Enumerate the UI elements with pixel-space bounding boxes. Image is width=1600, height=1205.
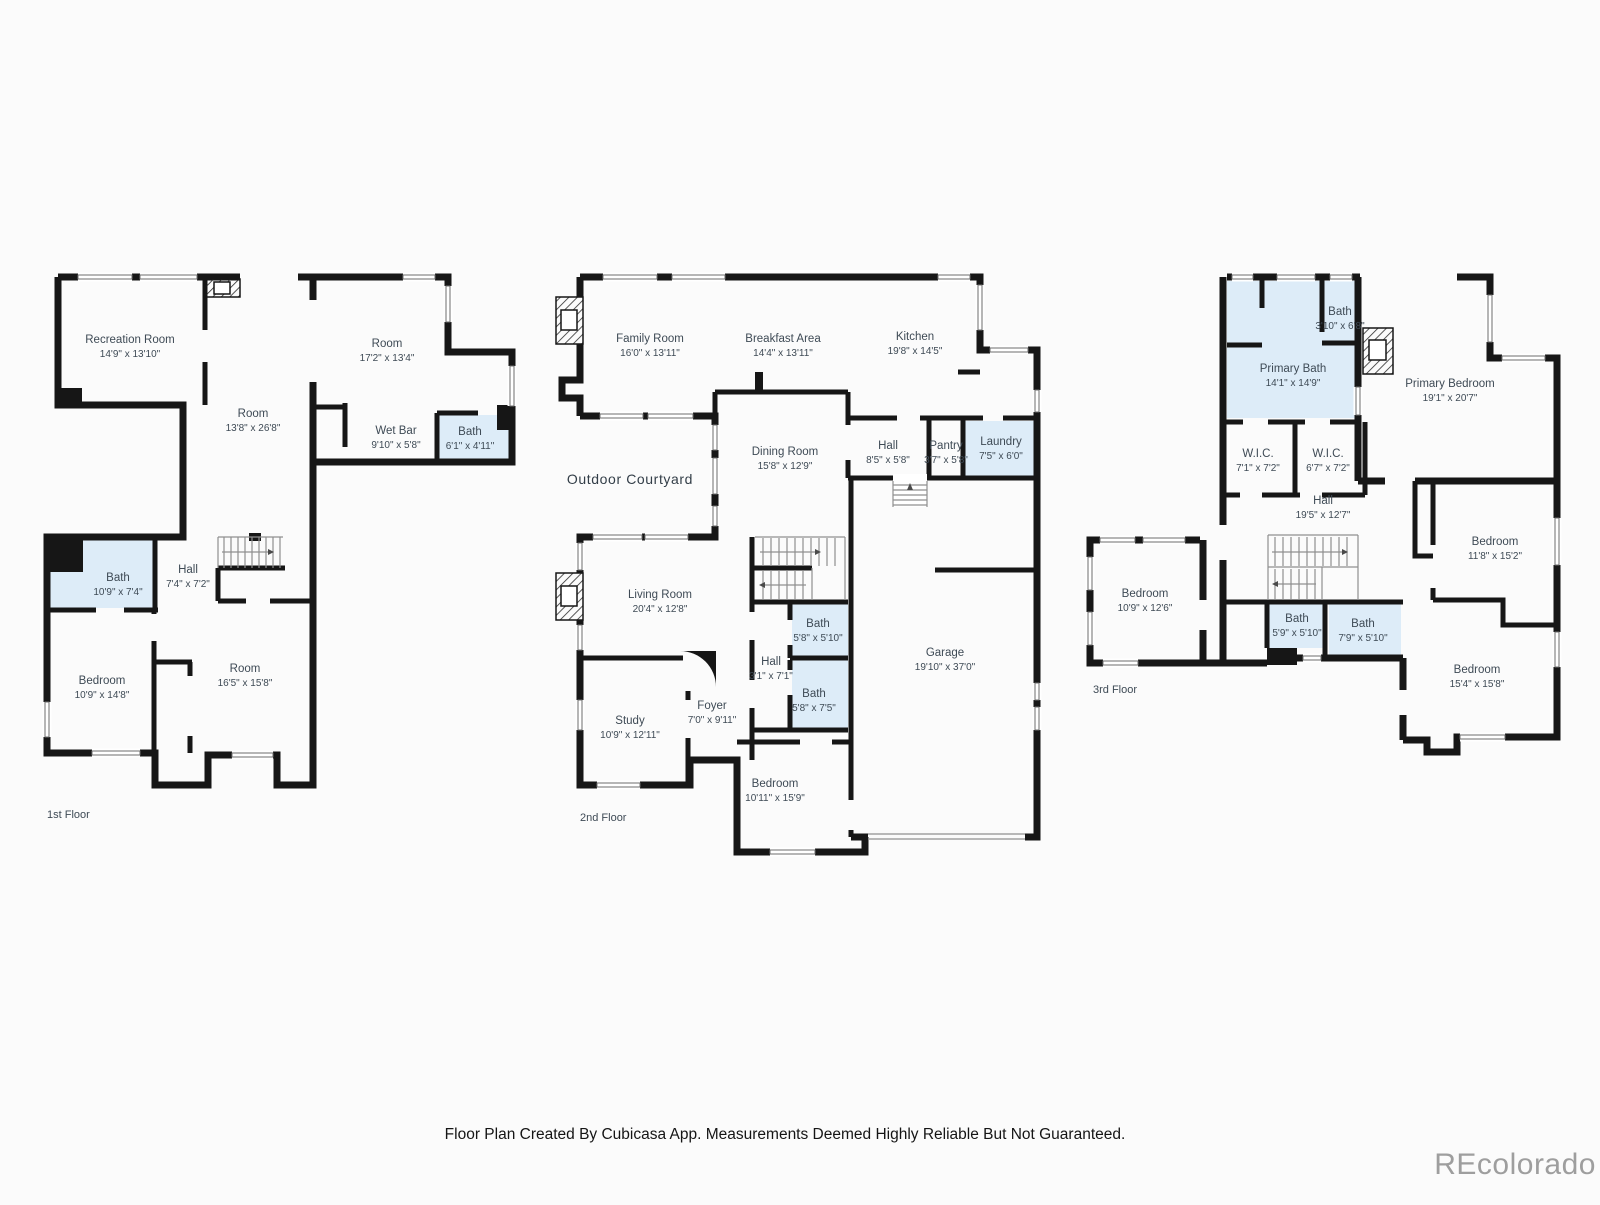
room-labels-1: Recreation Room 14'9" x 13'10" Room 13'8…	[75, 334, 495, 701]
recolorado-watermark: REcolorado	[1434, 1148, 1596, 1182]
windows-2	[576, 273, 1042, 857]
label-garage-name: Garage	[926, 647, 964, 659]
label-bedroom-3b-name: Bedroom	[1472, 536, 1519, 548]
label-family-room-dims: 16'0" x 13'11"	[620, 348, 680, 359]
fireplace-symbol-primary	[1363, 328, 1393, 374]
label-laundry-name: Laundry	[980, 436, 1022, 448]
label-bath-2b-dims: 5'8" x 7'5"	[792, 703, 836, 714]
label-wet-bar-name: Wet Bar	[375, 425, 416, 437]
label-wic-1-dims: 7'1" x 7'2"	[1236, 463, 1280, 474]
fireplace-symbol-family	[556, 297, 583, 344]
label-bath-lower-name: Bath	[106, 572, 130, 584]
label-room-right-dims: 17'2" x 13'4"	[360, 353, 415, 364]
wall-notch-3	[1267, 648, 1297, 665]
wet-room-fills-2	[792, 421, 1034, 730]
label-primary-bath-name: Primary Bath	[1260, 363, 1326, 375]
label-bedroom-3c-name: Bedroom	[1454, 664, 1501, 676]
fireplace-symbol-living	[556, 573, 583, 620]
label-recreation-room-dims: 14'9" x 13'10"	[100, 349, 161, 360]
label-family-room-name: Family Room	[616, 333, 684, 345]
label-hall-2b-dims: 3'1" x 7'1"	[749, 671, 793, 682]
label-hall-2a-dims: 8'5" x 5'8"	[866, 455, 910, 466]
label-laundry-dims: 7'5" x 6'0"	[979, 451, 1023, 462]
label-bath-2a-name: Bath	[806, 618, 830, 630]
label-bath-3b-name: Bath	[1285, 613, 1309, 625]
label-primary-bath-dims: 14'1" x 14'9"	[1266, 378, 1321, 389]
label-hall-1-dims: 7'4" x 7'2"	[166, 579, 210, 590]
exterior-walls-2	[562, 277, 1037, 852]
label-study-dims: 10'9" x 12'11"	[600, 730, 660, 741]
label-foyer-name: Foyer	[697, 700, 727, 712]
label-bath-3c-name: Bath	[1351, 618, 1375, 630]
label-living-room-dims: 20'4" x 12'8"	[633, 604, 688, 615]
label-bath-2b-name: Bath	[802, 688, 826, 700]
label-bath-small-dims: 6'1" x 4'11"	[446, 441, 495, 452]
label-bath-2a-dims: 5'8" x 5'10"	[793, 633, 843, 644]
label-bath-3a-dims: 3'10" x 6'8"	[1315, 321, 1365, 332]
floor-plan-page: Recreation Room 14'9" x 13'10" Room 13'8…	[0, 0, 1600, 1200]
label-living-room-name: Living Room	[628, 589, 692, 601]
label-wic-1-name: W.I.C.	[1242, 448, 1273, 460]
label-primary-bedroom-name: Primary Bedroom	[1405, 378, 1494, 390]
floor-plan-2nd: Family Room 16'0" x 13'11" Breakfast Are…	[556, 273, 1042, 857]
label-dining-room-name: Dining Room	[752, 446, 818, 458]
label-wic-2-name: W.I.C.	[1312, 448, 1343, 460]
label-bath-3a-name: Bath	[1328, 306, 1352, 318]
label-bedroom-3c-dims: 15'4" x 15'8"	[1450, 679, 1505, 690]
stairs-symbol-2-garage	[893, 474, 927, 507]
label-breakfast-area-name: Breakfast Area	[745, 333, 821, 345]
label-room-lower-name: Room	[230, 663, 261, 675]
label-recreation-room-name: Recreation Room	[85, 334, 174, 346]
label-bedroom-3a-dims: 10'9" x 12'6"	[1118, 603, 1173, 614]
foyer-corner-wall	[680, 651, 716, 687]
label-bedroom-1-name: Bedroom	[79, 675, 126, 687]
label-hall-2a-name: Hall	[878, 440, 898, 452]
label-bedroom-2-name: Bedroom	[752, 778, 799, 790]
room-labels-3: Bath 3'10" x 6'8" Primary Bath 14'1" x 1…	[1118, 306, 1523, 690]
label-breakfast-area-dims: 14'4" x 13'11"	[753, 348, 813, 359]
floor-label-1st: 1st Floor	[47, 809, 90, 821]
wall-stub-kitchen	[755, 372, 763, 392]
stairs-symbol-1	[218, 537, 283, 568]
label-primary-bedroom-dims: 19'1" x 20'7"	[1423, 393, 1478, 404]
label-bath-3b-dims: 5'9" x 5'10"	[1272, 628, 1322, 639]
label-bath-lower-dims: 10'9" x 7'4"	[93, 587, 143, 598]
floor-plan-3rd: Bath 3'10" x 6'8" Primary Bath 14'1" x 1…	[1086, 273, 1562, 753]
floor-plan-canvas: Recreation Room 14'9" x 13'10" Room 13'8…	[0, 0, 1600, 1200]
label-wic-2-dims: 6'7" x 7'2"	[1306, 463, 1350, 474]
disclaimer-caption: Floor Plan Created By Cubicasa App. Meas…	[0, 1126, 1570, 1144]
label-bath-small-name: Bath	[458, 426, 482, 438]
label-room-center-name: Room	[238, 408, 269, 420]
floor-label-3rd: 3rd Floor	[1093, 684, 1137, 696]
label-wet-bar-dims: 9'10" x 5'8"	[371, 440, 421, 451]
label-bedroom-1-dims: 10'9" x 14'8"	[75, 690, 130, 701]
label-hall-3-name: Hall	[1313, 495, 1333, 507]
floor-plan-1st: Recreation Room 14'9" x 13'10" Room 13'8…	[43, 273, 517, 822]
label-pantry-dims: 3'7" x 5'8"	[924, 455, 968, 466]
stairs-symbol-3	[1268, 535, 1358, 600]
floor-label-2nd: 2nd Floor	[580, 812, 627, 824]
stair-hatch-symbol	[206, 279, 240, 297]
label-room-center-dims: 13'8" x 26'8"	[226, 423, 281, 434]
label-foyer-dims: 7'0" x 9'11"	[688, 715, 737, 726]
label-hall-3-dims: 19'5" x 12'7"	[1296, 510, 1351, 521]
label-hall-1-name: Hall	[178, 564, 198, 576]
label-bedroom-2-dims: 10'11" x 15'9"	[745, 793, 805, 804]
label-study-name: Study	[615, 715, 645, 727]
label-outdoor-courtyard: Outdoor Courtyard	[567, 471, 693, 487]
label-bath-3c-dims: 7'9" x 5'10"	[1338, 633, 1388, 644]
label-kitchen-name: Kitchen	[896, 331, 934, 343]
label-kitchen-dims: 19'8" x 14'5"	[888, 346, 943, 357]
label-room-lower-dims: 16'5" x 15'8"	[218, 678, 273, 689]
label-pantry-name: Pantry	[929, 440, 962, 452]
label-room-right-name: Room	[372, 338, 403, 350]
label-hall-2b-name: Hall	[761, 656, 781, 668]
label-bedroom-3b-dims: 11'8" x 15'2"	[1468, 551, 1523, 562]
label-bedroom-3a-name: Bedroom	[1122, 588, 1169, 600]
label-dining-room-dims: 15'8" x 12'9"	[758, 461, 813, 472]
label-garage-dims: 19'10" x 37'0"	[915, 662, 976, 673]
garage-door-line	[868, 834, 1025, 839]
